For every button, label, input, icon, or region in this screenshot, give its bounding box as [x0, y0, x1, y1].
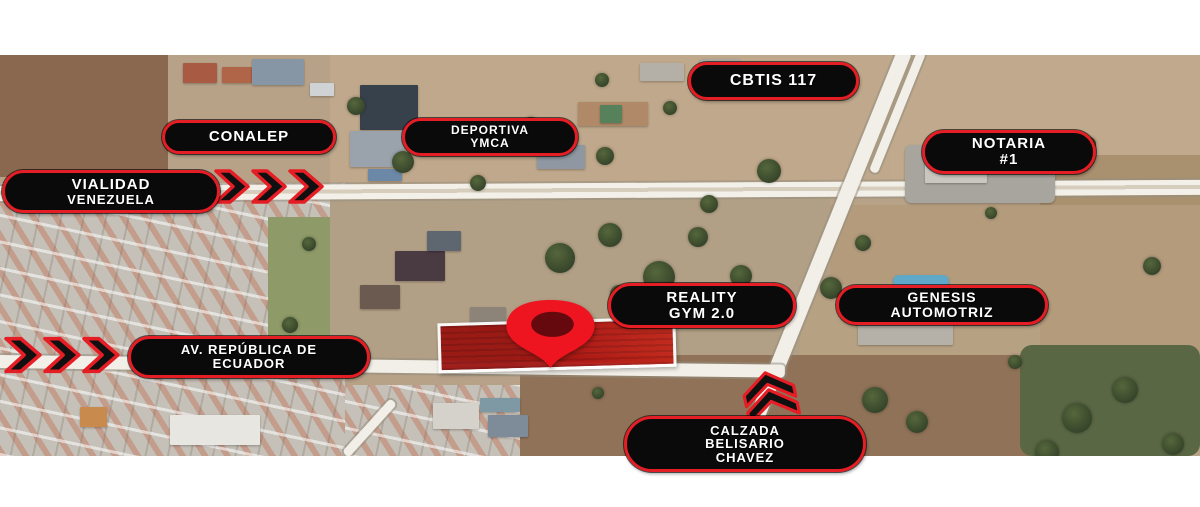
label-line: CBTIS 117	[730, 73, 817, 90]
satellite-map	[0, 55, 1200, 456]
label-line: CHAVEZ	[716, 451, 774, 465]
location-pin-icon	[502, 299, 599, 369]
map-label-genesis-automotriz: GENESIS AUTOMOTRIZ	[836, 285, 1048, 325]
label-line: VENEZUELA	[67, 193, 155, 207]
building-roof	[480, 398, 520, 412]
tree	[1162, 433, 1184, 455]
label-line: GENESIS	[907, 290, 976, 305]
building-roof	[640, 63, 684, 81]
building-roof	[252, 59, 304, 85]
label-line: AUTOMOTRIZ	[890, 305, 993, 320]
tree	[688, 227, 708, 247]
map-label-notaria-1: NOTARIA #1	[922, 130, 1096, 174]
map-label-calzada-belisario-chavez: CALZADA BELISARIO CHAVEZ	[624, 416, 866, 472]
label-line: CONALEP	[209, 129, 289, 145]
map-label-conalep: CONALEP	[162, 120, 336, 154]
tree	[392, 151, 414, 173]
building-roof	[222, 67, 252, 83]
map-label-deportiva-ymca: DEPORTIVA YMCA	[402, 118, 578, 156]
tree	[855, 235, 871, 251]
label-line: NOTARIA	[972, 136, 1046, 152]
tree	[1062, 403, 1092, 433]
bottom-white-margin	[0, 456, 1200, 507]
label-line: REALITY	[666, 290, 737, 306]
tree	[470, 175, 486, 191]
tree	[906, 411, 928, 433]
label-line: VIALIDAD	[72, 177, 151, 193]
label-line: #1	[1000, 152, 1019, 168]
tree	[1143, 257, 1161, 275]
building-roof	[427, 231, 461, 251]
tree	[596, 147, 614, 165]
tree	[595, 73, 609, 87]
top-white-margin	[0, 0, 1200, 55]
tree	[302, 237, 316, 251]
map-label-av-republica-de-ecuador: AV. REPÚBLICA DE ECUADOR	[128, 336, 370, 378]
label-line: GYM 2.0	[669, 306, 735, 322]
tree	[282, 317, 298, 333]
terrain-patch	[268, 217, 333, 352]
listing-map-image: CBTIS 117 CONALEP DEPORTIVA YMCA NOTARIA…	[0, 0, 1200, 507]
tree	[663, 101, 677, 115]
map-label-reality-gym: REALITY GYM 2.0	[608, 283, 796, 328]
building-roof	[170, 415, 260, 445]
building-roof	[360, 285, 400, 309]
tree	[347, 97, 365, 115]
triple-chevron-right-icon	[4, 336, 122, 374]
building-roof	[395, 251, 445, 281]
building-roof	[183, 63, 217, 83]
sports-court	[600, 105, 622, 123]
tree	[757, 159, 781, 183]
map-label-cbtis-117: CBTIS 117	[688, 62, 859, 100]
tree	[1008, 355, 1022, 369]
triple-chevron-right-icon	[214, 169, 326, 204]
tree	[598, 223, 622, 247]
building-roof	[433, 403, 479, 429]
tree	[985, 207, 997, 219]
tree	[862, 387, 888, 413]
label-line: CALZADA	[710, 424, 780, 438]
label-line: YMCA	[470, 137, 509, 150]
terrain-patch	[0, 55, 168, 177]
map-label-vialidad-venezuela: VIALIDAD VENEZUELA	[2, 170, 220, 213]
tree	[592, 387, 604, 399]
label-line: AV. REPÚBLICA DE	[181, 343, 317, 357]
building-roof	[80, 407, 107, 427]
building-roof	[488, 415, 528, 437]
label-line: ECUADOR	[213, 357, 286, 371]
building-roof	[310, 83, 334, 96]
tree	[1112, 377, 1138, 403]
label-line: BELISARIO	[705, 437, 785, 451]
tree	[700, 195, 718, 213]
tree	[545, 243, 575, 273]
